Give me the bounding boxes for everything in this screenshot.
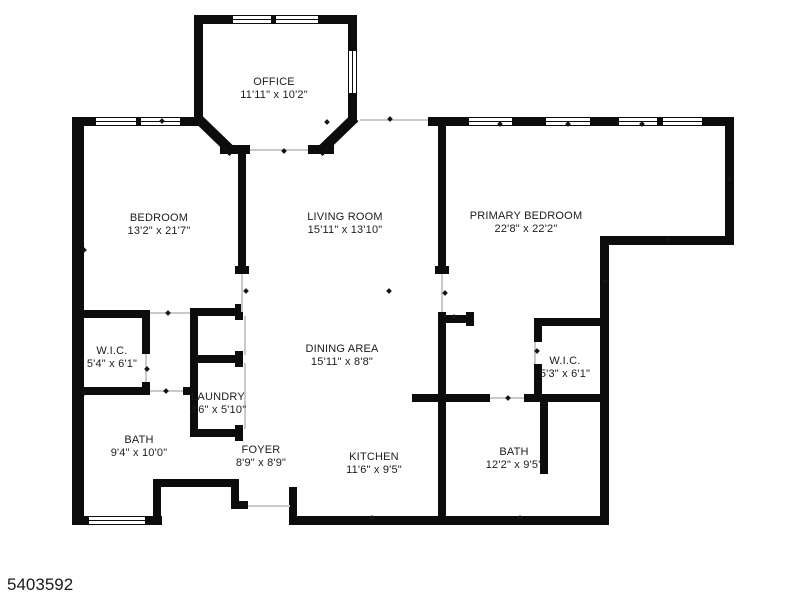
room-dims: 3'6" x 5'10" [190,404,247,417]
room-label-bath-left: BATH 9'4" x 10'0" [111,434,168,459]
wall-kitchen-bath-divider [438,394,446,525]
room-label-bedroom: BEDROOM 13'2" x 21'7" [128,212,191,237]
room-dims: 13'2" x 21'7" [128,225,191,238]
wall-bottom-right [289,516,609,525]
room-label-office: OFFICE 11'11" x 10'2" [240,76,308,101]
window-mullion [271,15,276,24]
wall-wic-left-right-upper [142,310,150,354]
room-label-laundry: LAUNDRY 3'6" x 5'10" [190,391,247,416]
listing-id: 5403592 [7,575,73,595]
opening-closet [244,316,246,355]
wall-living-primary-divider [438,124,446,266]
wall-entry-right-foot [231,501,248,509]
room-name: W.I.C. [540,355,590,368]
wall-office-left [194,15,203,120]
room-label-wic-right: W.I.C. 5'3" x 6'1" [540,355,590,380]
room-label-bath-right: BATH 12'2" x 9'5" [486,446,543,471]
wall-kitchen-top [412,394,490,402]
room-dims: 12'2" x 9'5" [486,459,543,472]
wall-cap [466,312,474,326]
window [88,516,146,525]
wall-dining-divider-lower [438,312,446,394]
wall-cap [235,266,249,274]
room-name: FOYER [236,444,286,457]
opening-office-entry [250,149,308,151]
room-label-wic-left: W.I.C. 5'4" x 6'1" [87,345,137,370]
room-name: LAUNDRY [190,391,247,404]
wall-entry-kitchen-stub [289,487,297,521]
room-label-kitchen: KITCHEN 11'6" x 9'5" [346,451,402,476]
room-name: KITCHEN [346,451,402,464]
wall-office-bottom-right [308,145,334,154]
opening-bedroom-door [241,274,243,312]
room-dims: 8'9" x 8'9" [236,457,286,470]
tick-mark [324,119,330,125]
room-dims: 15'11" x 8'8" [305,356,378,369]
tick-mark [386,288,392,294]
window [348,50,357,94]
wall-foyer-bottom [153,479,239,487]
room-label-living-room: LIVING ROOM 15'11" x 13'10" [307,211,383,236]
room-dims: 9'4" x 10'0" [111,447,168,460]
room-label-primary-bedroom: PRIMARY BEDROOM 22'8" x 22'2" [470,210,583,235]
window [468,117,513,126]
wall-cap [235,351,243,367]
opening-top-gap [360,119,428,121]
room-name: LIVING ROOM [307,211,383,224]
opening-front-door [248,505,290,507]
window [662,117,703,126]
wall-wic-right-left-upper [534,318,542,342]
wall-entry-left-jamb [153,479,161,525]
wall-cap [235,425,243,441]
room-dims: 15'11" x 13'10" [307,224,383,237]
room-dims: 5'3" x 6'1" [540,368,590,381]
wall-laundry-left [190,308,198,437]
room-dims: 22'8" x 22'2" [470,223,583,236]
room-label-foyer: FOYER 8'9" x 8'9" [236,444,286,469]
wall-exterior-left [72,117,84,525]
room-name: DINING AREA [305,343,378,356]
tick-mark [442,290,448,296]
wall-bedroom-living-divider [238,148,246,266]
room-label-dining-area: DINING AREA 15'11" x 8'8" [305,343,378,368]
room-name: BEDROOM [128,212,191,225]
room-name: BATH [486,446,543,459]
wall-cap [435,266,449,274]
room-dims: 5'4" x 6'1" [87,358,137,371]
room-name: PRIMARY BEDROOM [470,210,583,223]
room-name: OFFICE [240,76,308,89]
wall-wic-right-top [534,318,604,326]
wall-wic-left-top [84,310,150,318]
floorplan: OFFICE 11'11" x 10'2" BEDROOM 13'2" x 21… [0,0,800,600]
tick-mark [243,288,249,294]
room-dims: 11'11" x 10'2" [240,89,308,102]
room-name: BATH [111,434,168,447]
room-name: W.I.C. [87,345,137,358]
window-mullion [136,117,141,126]
room-dims: 11'6" x 9'5" [346,464,402,477]
